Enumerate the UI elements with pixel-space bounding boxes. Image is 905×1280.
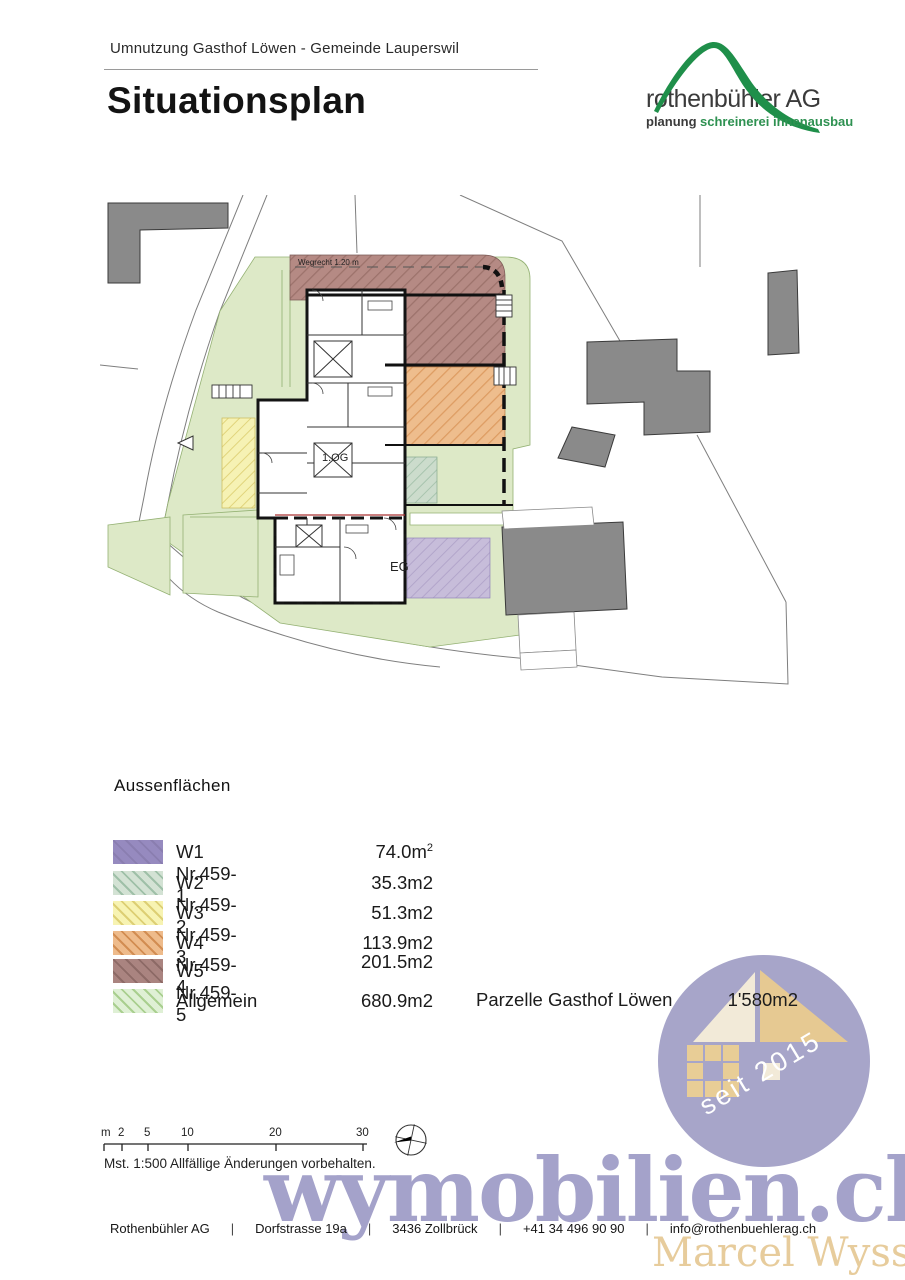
scale-5: 5 [144, 1127, 150, 1139]
w3-value-text: 51.3m2 [371, 902, 433, 923]
w1-value: 74.0m2 [303, 841, 433, 863]
footer-separator: | [368, 1221, 371, 1236]
site-plan: Wegrecht 1.20 m 1.OG EG [100, 195, 800, 705]
owner-watermark: Marcel Wyss [652, 1230, 905, 1276]
footer-email: info@rothenbuehlerag.ch [670, 1221, 816, 1236]
parcel-label: Parzelle Gasthof Löwen [476, 989, 672, 1011]
wegrecht-label: Wegrecht 1.20 m [298, 258, 359, 267]
footer-phone: +41 34 496 90 90 [523, 1221, 625, 1236]
logo-tagline-schreinerei: schreinerei [700, 114, 769, 129]
upper-floor-label: 1.OG [322, 452, 348, 464]
w5-value-text: 201.5m2 [361, 951, 433, 972]
w5-swatch [113, 959, 163, 983]
footer: Rothenbühler AG | Dorfstrasse 19a | 3436… [110, 1221, 816, 1236]
logo-tagline-innenausbau: innenausbau [773, 114, 853, 129]
allgemein-swatch [113, 989, 163, 1013]
w2-value-text: 35.3m2 [371, 872, 433, 893]
w5-value: 201.5m2 [303, 951, 433, 973]
w1-swatch [113, 840, 163, 864]
w1-area [407, 538, 490, 598]
w2-value: 35.3m2 [303, 872, 433, 894]
footer-street: Dorfstrasse 19a [255, 1221, 347, 1236]
footer-company: Rothenbühler AG [110, 1221, 210, 1236]
scale-unit: m [101, 1127, 111, 1139]
allgemein-value-text: 680.9m2 [361, 990, 433, 1011]
header-rule [104, 69, 538, 70]
legend-heading: Aussenflächen [114, 776, 231, 796]
wymobilien-badge: seit 2015 [658, 955, 870, 1167]
parcel-value: 1'580m2 [698, 989, 798, 1011]
footer-city: 3436 Zollbrück [392, 1221, 477, 1236]
w1-value-text: 74.0m [375, 841, 426, 862]
allgemein-value: 680.9m2 [303, 990, 433, 1012]
ground-floor-label: EG [390, 559, 409, 574]
w3-swatch [113, 901, 163, 925]
allgemein-label: Allgemein [176, 990, 257, 1012]
scale-2: 2 [118, 1127, 124, 1139]
w2-swatch [113, 871, 163, 895]
project-subtitle: Umnutzung Gasthof Löwen - Gemeinde Laupe… [110, 40, 459, 57]
footer-separator: | [499, 1221, 502, 1236]
w1-value-sup: 2 [427, 842, 433, 854]
w4-value-text: 113.9m2 [362, 932, 433, 953]
footer-separator: | [646, 1221, 649, 1236]
scale-10: 10 [181, 1127, 194, 1139]
company-logo: rothenbühler AG planung schreinerei inne… [638, 33, 858, 135]
page-title: Situationsplan [107, 80, 366, 122]
w3-value: 51.3m2 [303, 902, 433, 924]
logo-tagline-planung: planung [646, 114, 697, 129]
w3-area [222, 418, 255, 508]
w4-swatch [113, 931, 163, 955]
footer-separator: | [231, 1221, 234, 1236]
